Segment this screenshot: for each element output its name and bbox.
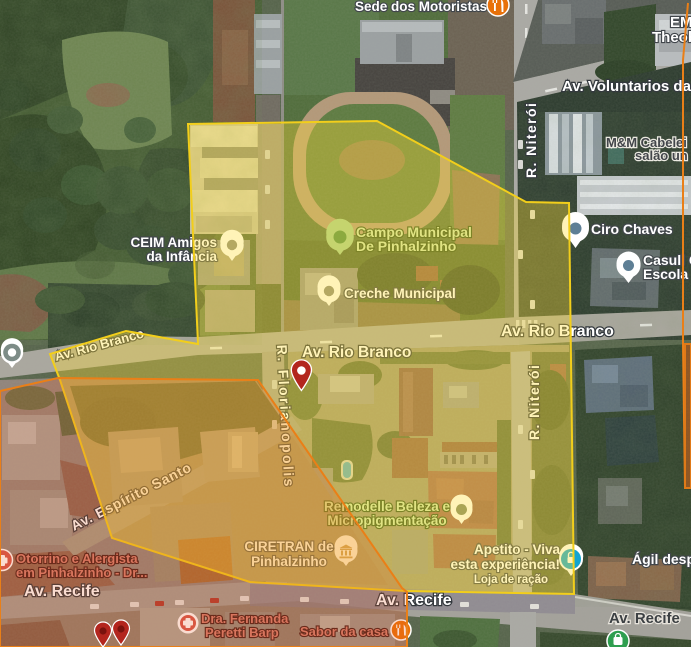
svg-text:Ciro Chaves: Ciro Chaves <box>591 221 673 237</box>
svg-text:Av. Voluntarios da: Av. Voluntarios da <box>562 78 691 95</box>
svg-text:Sede dos Motoristas: Sede dos Motoristas <box>355 0 487 14</box>
svg-text:R. Niterói: R. Niterói <box>523 102 539 178</box>
svg-text:Av. Recife: Av. Recife <box>609 610 680 627</box>
svg-text:Ágil desp: Ágil desp <box>632 551 691 567</box>
svg-text:salão un: salão un <box>635 148 688 163</box>
